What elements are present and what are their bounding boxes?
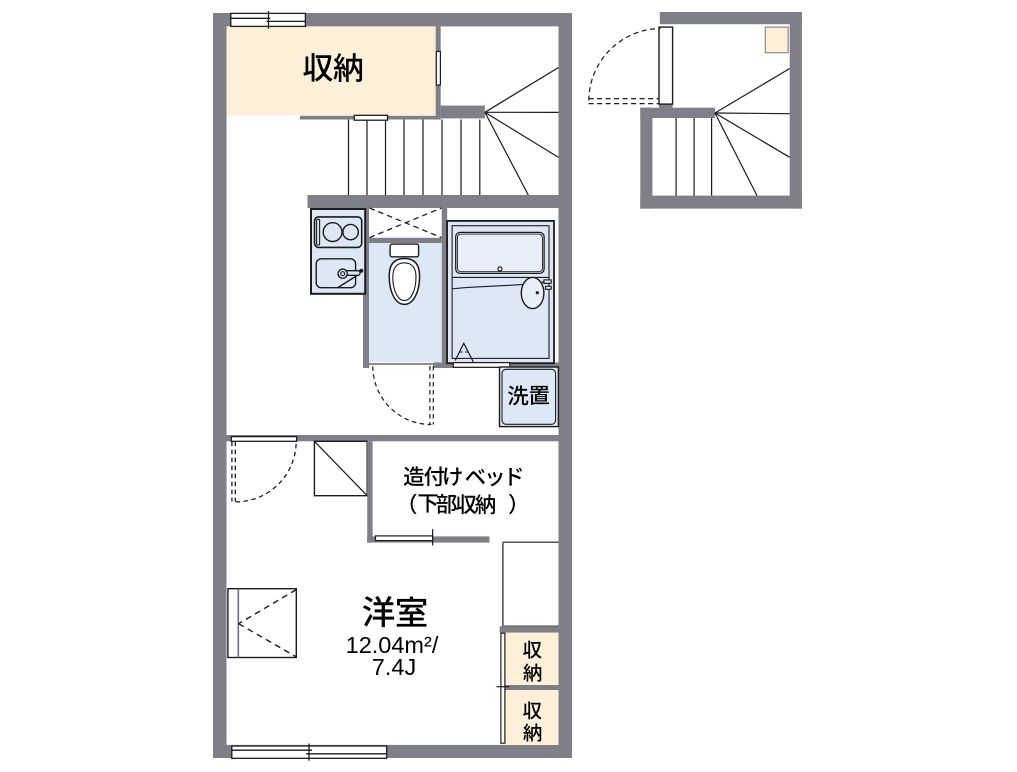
svg-text:7.4J: 7.4J xyxy=(372,654,416,680)
